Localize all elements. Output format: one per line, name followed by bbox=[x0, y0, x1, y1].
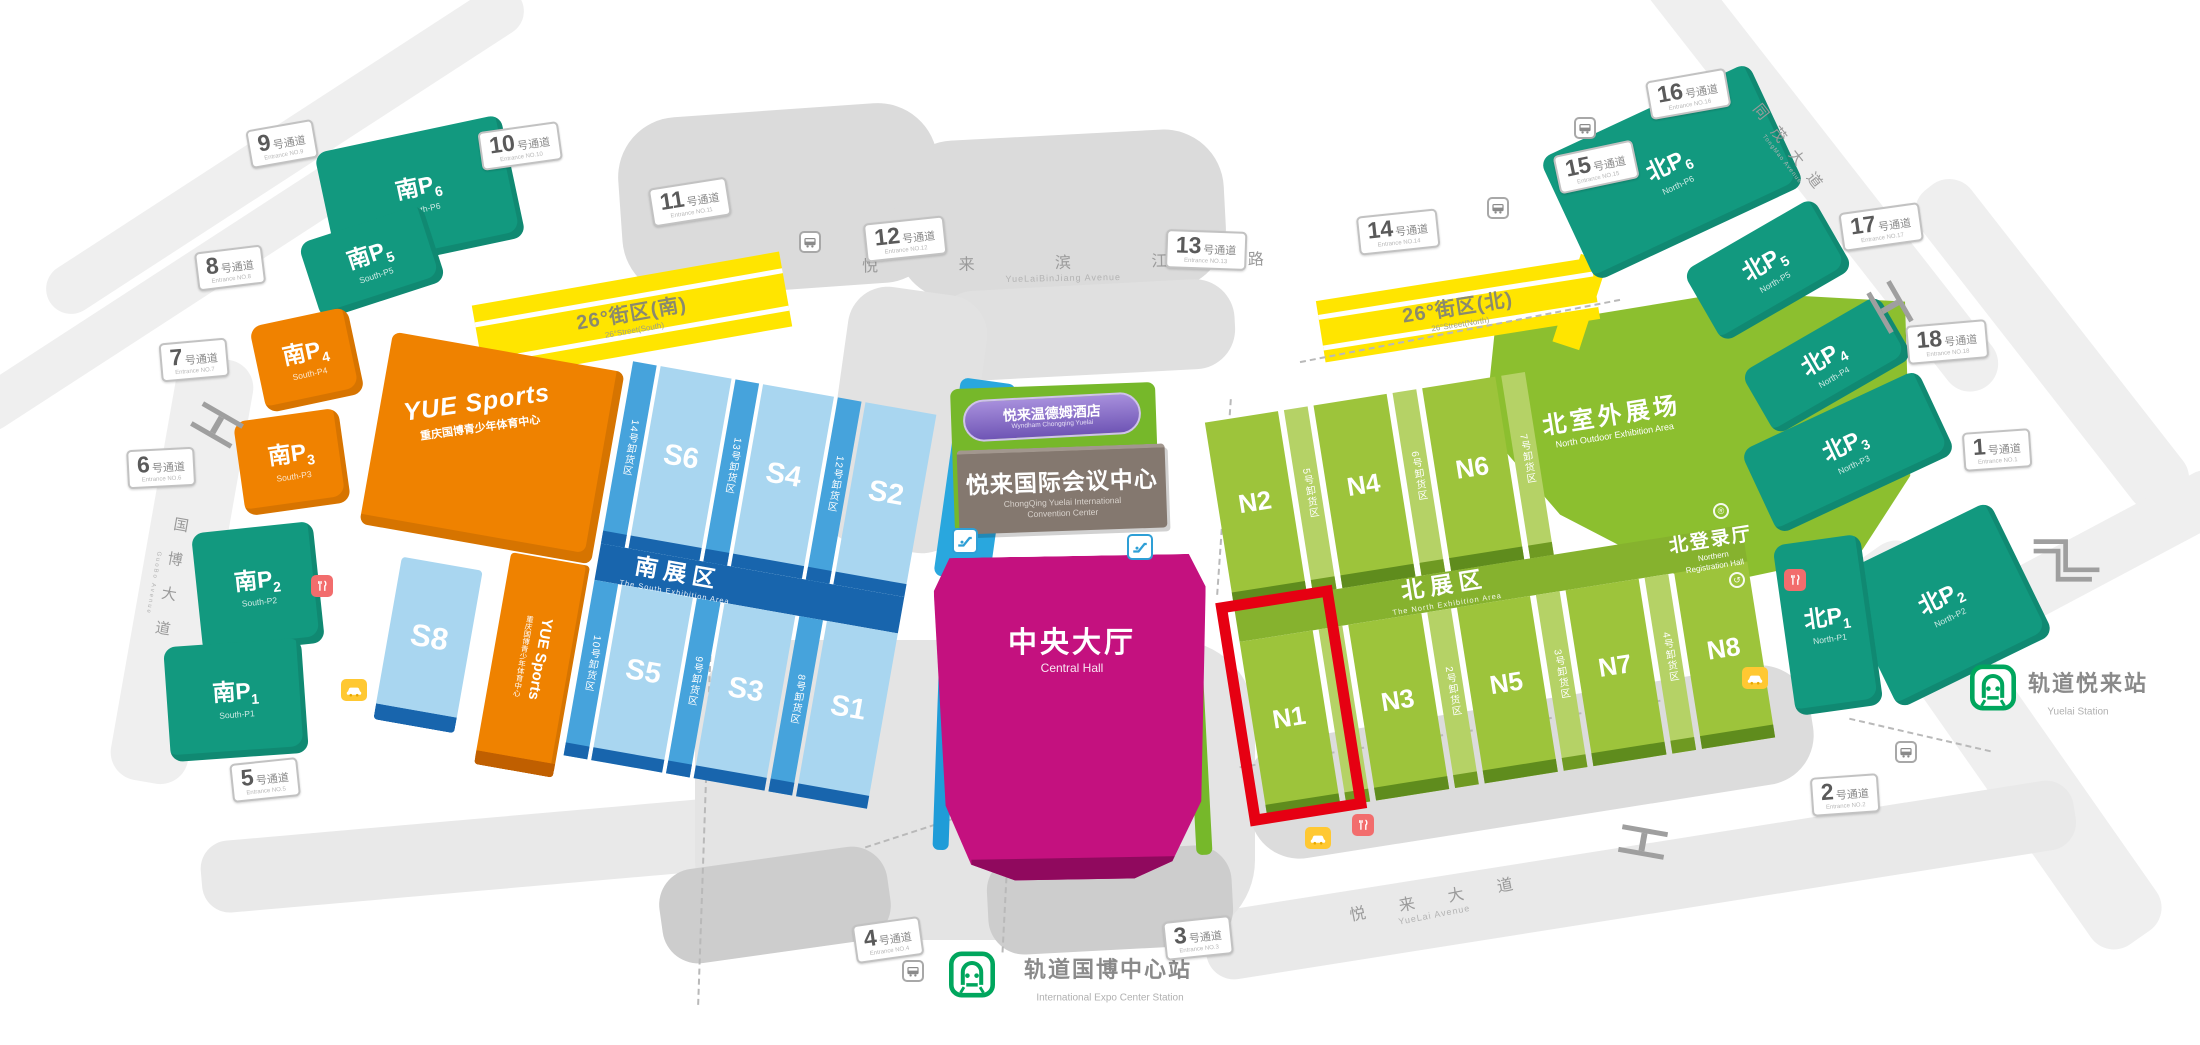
parking-south-p1: 南P1South-P1 bbox=[163, 638, 309, 762]
yuelai-station-label: 轨道悦来站 bbox=[2028, 666, 2148, 698]
passage-label-18: 18号通道Entrance NO.18 bbox=[1905, 319, 1989, 365]
bus-stop-icon bbox=[1487, 197, 1509, 219]
passage-label-2: 2号通道Entrance NO.2 bbox=[1810, 773, 1880, 817]
restaurant-icon bbox=[311, 575, 333, 597]
passage-label-5: 5号通道Entrance NO.5 bbox=[229, 757, 301, 803]
passage-label-13: 13号通道Entrance NO.13 bbox=[1165, 229, 1247, 271]
yue-sports-building bbox=[359, 332, 624, 565]
car-icon bbox=[1742, 667, 1768, 689]
passage-label-7: 7号通道Entrance NO.7 bbox=[159, 338, 230, 383]
bus-stop-icon bbox=[902, 960, 924, 982]
loop-arrow-icon: ↺ bbox=[1729, 572, 1745, 588]
bus-stop-icon bbox=[1574, 117, 1596, 139]
passage-label-4: 4号通道Entrance NO.4 bbox=[852, 916, 925, 964]
bus-stop-icon bbox=[799, 231, 821, 253]
bus-stop-icon bbox=[1895, 741, 1917, 763]
north-exhibition-block: N2 5号卸货区 N4 6号卸货区 N6 7号卸货区 N1 1号卸货区 N3 2… bbox=[1205, 342, 1775, 817]
passage-label-3: 3号通道Entrance NO.3 bbox=[1162, 915, 1234, 961]
parking-south-p3: 南P3South-P3 bbox=[233, 408, 351, 517]
passage-label-1: 1号通道Entrance NO.1 bbox=[1962, 428, 2032, 472]
convention-center: 悦来国际会议中心 ChongQing Yuelai InternationalC… bbox=[957, 443, 1168, 534]
expo-station-label-en: International Expo Center Station bbox=[1036, 993, 1183, 1004]
escalator-icon bbox=[1127, 534, 1153, 560]
escalator-icon bbox=[952, 528, 978, 554]
passage-label-6: 6号通道Entrance NO.6 bbox=[126, 447, 196, 489]
car-icon bbox=[341, 679, 367, 701]
stairs-icon bbox=[2029, 529, 2121, 596]
registration-badge-icon: ® bbox=[1713, 503, 1729, 519]
metro-station-icon bbox=[1970, 665, 2016, 716]
central-hall-label: 中央大厅 Central Hall bbox=[1008, 619, 1136, 675]
yuelai-station-label-en: Yuelai Station bbox=[2047, 707, 2108, 718]
car-icon bbox=[1305, 827, 1331, 849]
passage-label-8: 8号通道Entrance NO.8 bbox=[194, 245, 266, 292]
expo-center-map: 26°街区(南) 26°Street(South) 26°街区(北) 26°St… bbox=[0, 0, 2200, 1045]
metro-station-icon bbox=[949, 952, 995, 1003]
parking-south-p4: 南P4South-P4 bbox=[249, 307, 365, 414]
restaurant-icon bbox=[1784, 569, 1806, 591]
passage-label-14: 14号通道Entrance NO.14 bbox=[1356, 208, 1440, 255]
hall-s8: S8 bbox=[373, 557, 482, 734]
parking-south-p2: 南P2South-P2 bbox=[191, 521, 325, 655]
central-hall bbox=[933, 554, 1211, 889]
restaurant-icon bbox=[1352, 814, 1374, 836]
